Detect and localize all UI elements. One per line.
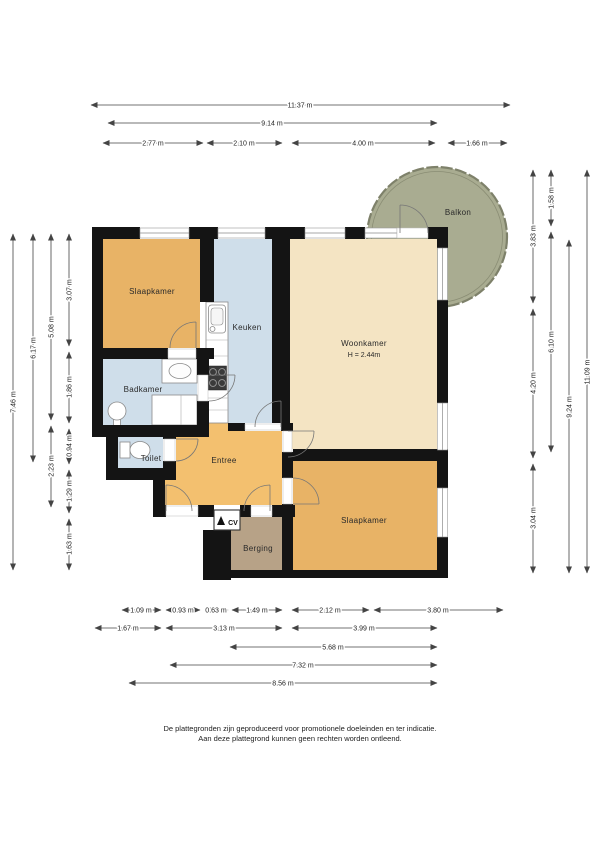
dim-label: 1.49 m <box>246 608 268 615</box>
cv-label: CV <box>228 520 238 527</box>
dim-label: 9.24 m <box>567 396 574 418</box>
footer-line-1: De plattegronden zijn geproduceerd voor … <box>163 724 436 733</box>
dimensions-right: 3.83 m 4.20 m 3.04 m 1.58 m 6.10 m 9.24 … <box>531 170 592 573</box>
dim-label: 9.14 m <box>261 121 283 128</box>
dimensions-left: 7.46 m 6.17 m 5.08 m 2.23 m 3.07 m 1.86 … <box>11 234 74 570</box>
window <box>438 403 448 450</box>
dim-label: 11.09 m <box>585 359 592 384</box>
stove-icon <box>208 366 227 390</box>
label-slaapkamer-2: Slaapkamer <box>341 516 387 525</box>
footer-line-2: Aan deze plattegrond kunnen geen rechten… <box>198 734 402 743</box>
window <box>305 228 345 238</box>
window <box>140 228 189 238</box>
dim-label: 3.07 m <box>67 279 74 301</box>
cv-closet: CV <box>214 510 240 530</box>
window <box>218 228 265 238</box>
label-toilet: Toilet <box>141 454 162 463</box>
dim-label: 2.23 m <box>49 455 56 477</box>
dim-label: 1.29 m <box>67 480 74 502</box>
dim-label: 2.77 m <box>142 141 164 148</box>
dim-label: 3.04 m <box>531 507 538 529</box>
dim-label: 0.94 m <box>67 435 74 457</box>
dim-label: 6.17 m <box>31 337 38 359</box>
dim-label: 2.12 m <box>319 608 341 615</box>
dim-label: 5.68 m <box>322 645 344 652</box>
kitchen-counter <box>206 302 228 423</box>
dim-label: 7.46 m <box>11 391 18 413</box>
dim-label: 1.66 m <box>466 141 488 148</box>
dim-label: 4.00 m <box>352 141 374 148</box>
label-woonkamer: Woonkamer <box>341 339 387 348</box>
dim-label: 6.10 m <box>549 331 556 353</box>
dim-label: 4.20 m <box>531 372 538 394</box>
window <box>438 488 448 537</box>
floorplan-canvas: CV Slaapkamer Keuken Woonkamer H = 2.44m… <box>0 0 600 849</box>
dim-label: 1.86 m <box>67 376 74 398</box>
dim-label: 5.08 m <box>49 316 56 338</box>
dim-label: 11.37 m <box>288 103 313 110</box>
label-berging: Berging <box>243 544 273 553</box>
dim-label: 1.67 m <box>117 626 139 633</box>
dim-label: 1.63 m <box>67 533 74 555</box>
label-badkamer: Badkamer <box>124 385 163 394</box>
dim-label: 3.99 m <box>353 626 375 633</box>
dim-label: 7.32 m <box>292 663 314 670</box>
floorplan-page: CV Slaapkamer Keuken Woonkamer H = 2.44m… <box>0 0 600 849</box>
dimensions-bottom: 1.09 m 0.93 m 0.63 m 1.49 m 2.12 m 3.80 … <box>95 608 503 688</box>
dim-label: 3.80 m <box>427 608 449 615</box>
faucet-icon <box>210 327 215 332</box>
label-woonkamer-height: H = 2.44m <box>348 352 381 359</box>
dim-label: 1.58 m <box>549 187 556 209</box>
dim-label: 8.56 m <box>272 681 294 688</box>
dim-label: 1.09 m <box>130 608 152 615</box>
label-keuken: Keuken <box>233 323 262 332</box>
dim-label: 3.83 m <box>531 225 538 247</box>
label-slaapkamer-1: Slaapkamer <box>129 287 175 296</box>
window <box>365 228 397 238</box>
footer-disclaimer: De plattegronden zijn geproduceerd voor … <box>163 724 436 743</box>
dim-label: 0.63 m <box>205 608 227 615</box>
window <box>438 248 448 300</box>
dimensions-top: 11.37 m 9.14 m 2.77 m 2.10 m 4.00 m 1.66… <box>91 103 510 148</box>
dim-label: 0.93 m <box>172 608 194 615</box>
label-entree: Entree <box>211 456 237 465</box>
dim-label: 3.13 m <box>213 626 235 633</box>
label-balkon: Balkon <box>445 208 471 217</box>
shower-icon <box>152 395 197 425</box>
dim-label: 2.10 m <box>233 141 255 148</box>
